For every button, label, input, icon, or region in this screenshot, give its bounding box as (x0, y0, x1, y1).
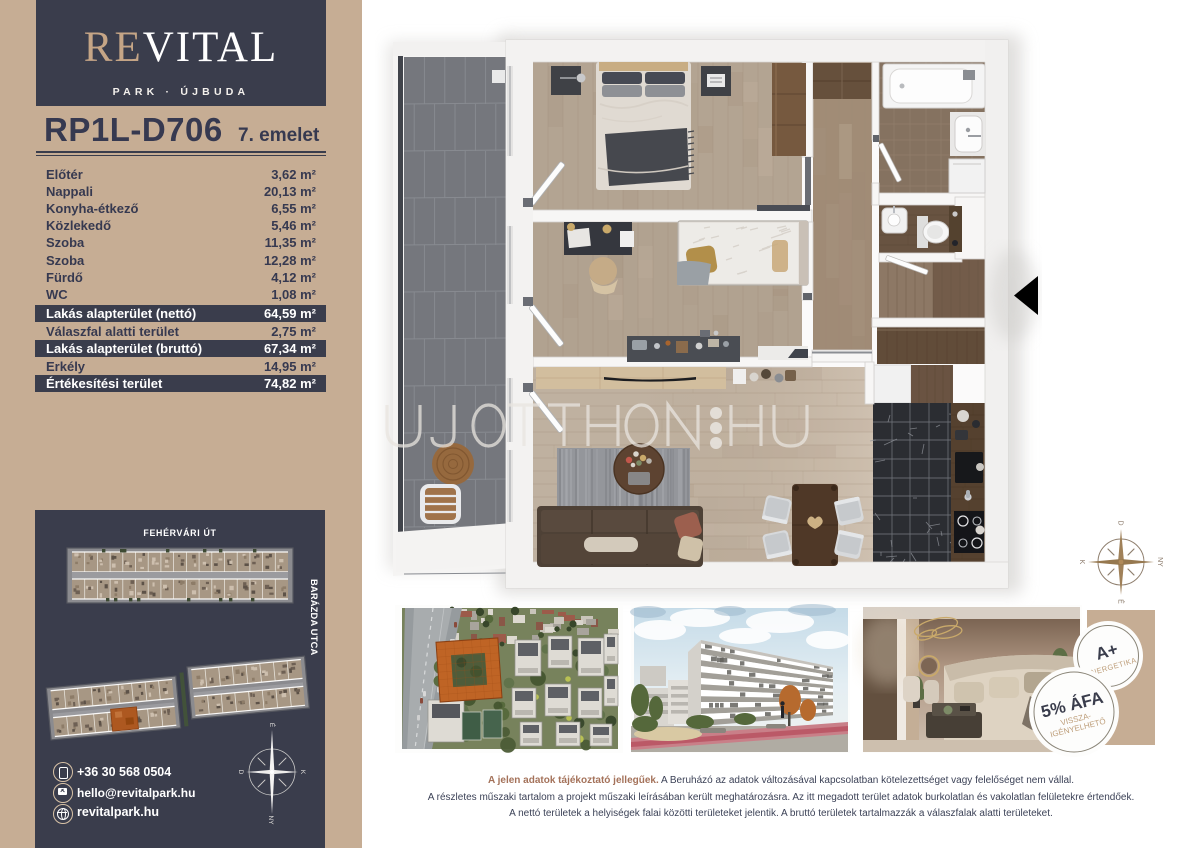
svg-text:D: D (237, 770, 244, 775)
svg-text:K: K (299, 770, 306, 775)
svg-text:NY: NY (1156, 557, 1163, 567)
svg-text:É: É (268, 723, 277, 728)
svg-text:É: É (1117, 599, 1126, 604)
svg-text:K: K (1078, 560, 1085, 565)
svg-text:NY: NY (267, 815, 274, 825)
svg-text:D: D (1117, 520, 1124, 525)
